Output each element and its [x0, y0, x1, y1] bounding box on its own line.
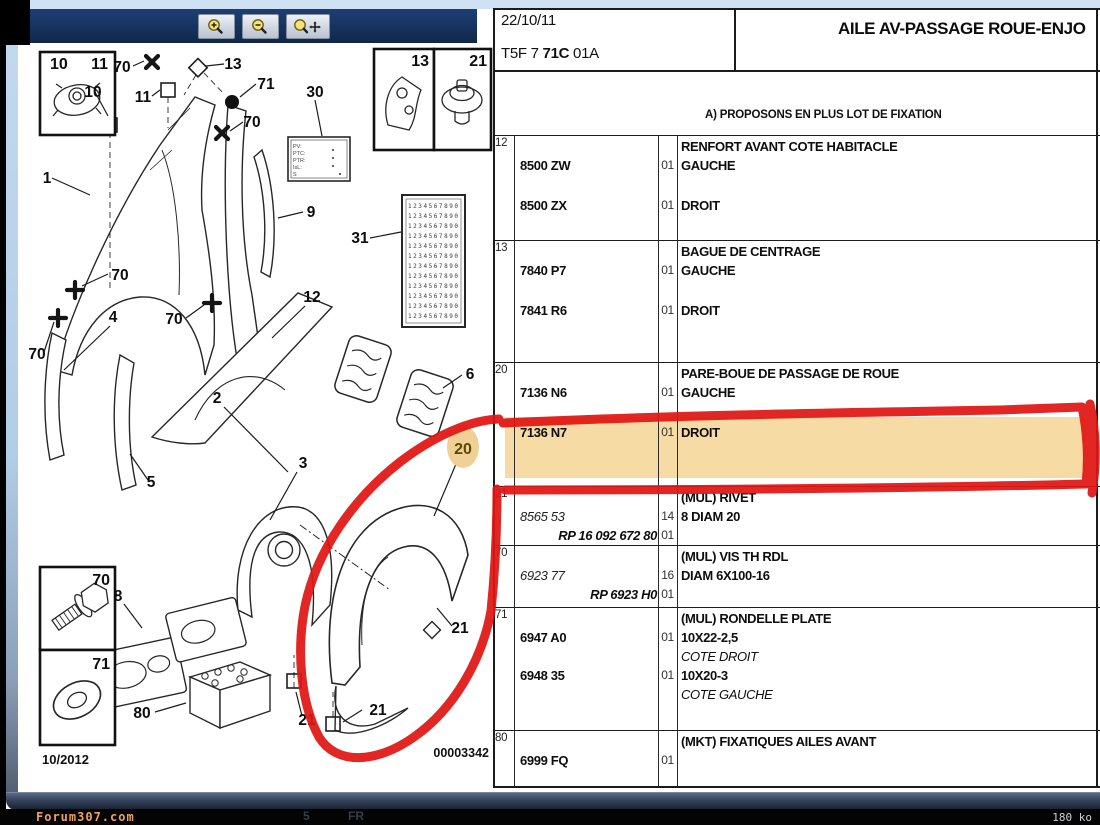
description-cell: DROIT — [677, 196, 1100, 215]
diagram-toolbar — [30, 9, 477, 43]
callout-71: 71 — [257, 76, 275, 93]
table-row[interactable]: 20PARE-BOUE DE PASSAGE DE ROUE7136 N601G… — [493, 362, 1100, 486]
callout-9: 9 — [307, 204, 316, 221]
part-number-cell: 6923 77 — [514, 566, 658, 585]
drawing-number: 00003342 — [433, 746, 489, 760]
svg-text:1234567890: 1234567890 — [408, 223, 458, 230]
quantity-cell: 01 — [658, 301, 677, 320]
quantity-cell: 01 — [658, 383, 677, 402]
row-index: 80 — [495, 732, 507, 744]
page-ref-suffix: 01A — [569, 45, 599, 62]
watermark-label: Forum307.com — [36, 810, 135, 824]
table-header: 22/10/11 T5F 7 71C 01A AILE AV-PASSAGE R… — [493, 9, 1100, 135]
part-number-cell: 7136 N6 — [514, 383, 658, 402]
part-line: 6947 A00110X22-2,5 — [514, 628, 1100, 647]
svg-text:PTR:: PTR: — [293, 158, 306, 164]
window-left-edge — [0, 0, 6, 825]
window-side-strip — [6, 43, 18, 792]
part-line: 8500 ZW01GAUCHE — [514, 156, 1100, 175]
part-description-header: (MUL) RONDELLE PLATE — [677, 609, 1100, 628]
table-row[interactable]: 12RENFORT AVANT COTE HABITACLE8500 ZW01G… — [493, 135, 1100, 240]
language-label: FR — [348, 809, 364, 823]
column-divider — [677, 135, 678, 787]
part-number-cell: 8500 ZW — [514, 156, 658, 175]
part-number-cell: 6948 35 — [514, 666, 658, 685]
svg-text:IsL:: IsL: — [293, 165, 302, 171]
callout-80: 80 — [133, 705, 150, 722]
diagram-date-label: 10/2012 — [42, 752, 89, 767]
callout-2: 2 — [213, 390, 222, 407]
magnifier-move-icon — [293, 18, 323, 35]
svg-text:PTC:: PTC: — [293, 151, 306, 157]
callout-5: 5 — [147, 474, 156, 491]
table-top-border — [493, 8, 1100, 10]
table-bottom-border — [493, 786, 1100, 788]
description-side-cell: COTE DROIT — [677, 647, 1100, 666]
magnifier-plus-icon — [206, 18, 228, 35]
svg-text:1234567890: 1234567890 — [408, 253, 458, 260]
inset-label-70: 70 — [92, 572, 110, 589]
quantity-cell: 01 — [658, 196, 677, 215]
exploded-parts-diagram: PV: PTC: PTR: IsL: S 1234567890 12345678… — [6, 43, 493, 792]
zoom-out-button[interactable] — [242, 14, 279, 39]
quantity-cell: 14 — [658, 507, 677, 526]
column-divider — [514, 135, 515, 787]
inset-label-21: 21 — [469, 53, 487, 70]
svg-text:1234567890: 1234567890 — [408, 203, 458, 210]
part-number-cell: 7840 P7 — [514, 261, 658, 280]
svg-text:1234567890: 1234567890 — [408, 263, 458, 270]
callout-70: 70 — [113, 59, 130, 76]
sheet-title: AILE AV-PASSAGE ROUE-ENJO — [736, 19, 1100, 43]
callout-4: 4 — [109, 309, 118, 326]
part-line: 6923 7716DIAM 6X100-16 — [514, 566, 1100, 585]
diagram-panel: PV: PTC: PTR: IsL: S 1234567890 12345678… — [6, 43, 493, 792]
column-divider — [658, 135, 659, 787]
filesize-label: 180 ko — [1052, 811, 1092, 824]
page-reference: T5F 7 71C 01A — [501, 45, 599, 62]
inset-label-71: 71 — [92, 656, 110, 673]
part-number-cell: RP 16 092 672 80 — [514, 526, 658, 545]
magnifier-minus-icon — [250, 18, 272, 35]
part-line: 7840 P701GAUCHE — [514, 261, 1100, 280]
quantity-cell: 01 — [658, 666, 677, 685]
part-line: COTE DROIT — [514, 647, 1100, 666]
description-cell: 10X20-3 — [677, 666, 1100, 685]
highlighted-part-line: 7136 N701DROIT — [514, 423, 1100, 442]
part-number-cell: 8565 53 — [514, 507, 658, 526]
quantity-cell: 01 — [658, 628, 677, 647]
footer-bar: Forum307.com 5 FR 180 ko — [0, 809, 1100, 825]
row-index: 71 — [495, 609, 507, 621]
svg-text:PV:: PV: — [293, 144, 302, 150]
callout-70: 70 — [243, 114, 260, 131]
part-number-cell: 8500 ZX — [514, 196, 658, 215]
parts-table-body: 12RENFORT AVANT COTE HABITACLE8500 ZW01G… — [493, 135, 1100, 787]
callout-21: 21 — [369, 702, 387, 719]
part-description-header: PARE-BOUE DE PASSAGE DE ROUE — [677, 364, 1100, 383]
part-number-cell: RP 6923 H0 — [514, 585, 658, 604]
header-bottom-border — [493, 70, 1100, 72]
part-description-header: (MKT) FIXATIQUES AILES AVANT — [677, 732, 1100, 751]
quantity-cell: 01 — [658, 156, 677, 175]
row-index: 21 — [495, 488, 507, 500]
callout-8: 8 — [114, 588, 123, 605]
pin-dot-marker — [225, 95, 239, 109]
svg-text:1234567890: 1234567890 — [408, 243, 458, 250]
table-row[interactable]: 71(MUL) RONDELLE PLATE6947 A00110X22-2,5… — [493, 607, 1100, 730]
quantity-cell: 01 — [658, 526, 677, 545]
digit-sticker-sheet-31: 1234567890 1234567890 1234567890 1234567… — [402, 195, 465, 327]
description-side-cell: COTE GAUCHE — [677, 685, 1100, 704]
svg-text:1234567890: 1234567890 — [408, 233, 458, 240]
date-label: 22/10/11 — [501, 12, 556, 29]
svg-text:1234567890: 1234567890 — [408, 313, 458, 320]
callout-11: 11 — [135, 89, 152, 106]
part-description-header: (MUL) RIVET — [677, 488, 1100, 507]
table-row[interactable]: 13BAGUE DE CENTRAGE7840 P701GAUCHE7841 R… — [493, 240, 1100, 362]
row-index: 13 — [495, 242, 507, 254]
page-number-label: 5 — [303, 809, 310, 823]
table-row[interactable]: 21(MUL) RIVET8565 53148 DIAM 20RP 16 092… — [493, 486, 1100, 545]
part-description-header: (MUL) VIS TH RDL — [677, 547, 1100, 566]
row-index: 70 — [495, 547, 507, 559]
callout-1: 1 — [43, 170, 52, 187]
part-line: RP 16 092 672 8001 — [514, 526, 1100, 545]
quantity-cell: 01 — [658, 261, 677, 280]
callout-3: 3 — [299, 455, 308, 472]
part-number-cell: 7841 R6 — [514, 301, 658, 320]
part-line: COTE GAUCHE — [514, 685, 1100, 704]
quantity-cell: 01 — [658, 751, 677, 770]
callout-70: 70 — [111, 267, 128, 284]
callout-31: 31 — [351, 230, 369, 247]
description-cell: GAUCHE — [677, 261, 1100, 280]
quantity-cell: 16 — [658, 566, 677, 585]
row-index: 20 — [495, 364, 507, 376]
description-cell: DROIT — [677, 423, 1100, 442]
svg-text:S: S — [293, 172, 297, 178]
window-bottom-bar — [6, 792, 1100, 810]
spec-plate-30: PV: PTC: PTR: IsL: S — [288, 137, 350, 181]
callout-21: 21 — [451, 620, 469, 637]
svg-text:1234567890: 1234567890 — [408, 283, 458, 290]
inset-label-10: 10 — [50, 56, 68, 73]
zoom-in-button[interactable] — [198, 14, 235, 39]
page-ref-code: 71C — [543, 45, 570, 62]
row-index: 12 — [495, 137, 507, 149]
callout-20: 20 — [454, 441, 472, 458]
part-line: 6999 FQ01 — [514, 751, 1100, 770]
table-right-border — [1096, 9, 1098, 787]
inset-label-13: 13 — [411, 53, 429, 70]
page-ref-prefix: T5F 7 — [501, 45, 543, 62]
table-row[interactable]: 70(MUL) VIS TH RDL6923 7716DIAM 6X100-16… — [493, 545, 1100, 607]
inset-label-11: 11 — [91, 56, 108, 73]
part-line: 8565 53148 DIAM 20 — [514, 507, 1100, 526]
description-cell: DROIT — [677, 301, 1100, 320]
description-cell: GAUCHE — [677, 156, 1100, 175]
callout-12: 12 — [303, 289, 320, 306]
parts-catalog-window: PV: PTC: PTR: IsL: S 1234567890 12345678… — [0, 0, 1100, 825]
callout-70: 70 — [165, 311, 182, 328]
callout-21: 21 — [298, 712, 316, 729]
table-left-border — [493, 9, 495, 787]
svg-text:1234567890: 1234567890 — [408, 213, 458, 220]
svg-text:1234567890: 1234567890 — [408, 273, 458, 280]
part-number-cell: 6947 A0 — [514, 628, 658, 647]
callout-30: 30 — [306, 84, 323, 101]
part-line: 8500 ZX01DROIT — [514, 196, 1100, 215]
callout-10: 10 — [84, 84, 101, 101]
zoom-pan-button[interactable] — [286, 14, 330, 39]
header-divider — [734, 9, 736, 70]
description-cell: 8 DIAM 20 — [677, 507, 1100, 526]
part-line: 7136 N601GAUCHE — [514, 383, 1100, 402]
fixation-note: A) PROPOSONS EN PLUS LOT DE FIXATION — [705, 109, 942, 121]
description-cell: DIAM 6X100-16 — [677, 566, 1100, 585]
table-row[interactable]: 80(MKT) FIXATIQUES AILES AVANT6999 FQ01 — [493, 730, 1100, 789]
description-cell: 10X22-2,5 — [677, 628, 1100, 647]
part-description-header: RENFORT AVANT COTE HABITACLE — [677, 137, 1100, 156]
quantity-cell: 01 — [658, 585, 677, 604]
part-number-cell: 6999 FQ — [514, 751, 658, 770]
part-line: 7841 R601DROIT — [514, 301, 1100, 320]
callout-70: 70 — [28, 346, 45, 363]
quantity-cell: 01 — [658, 423, 677, 442]
part-number-cell: 7136 N7 — [514, 423, 658, 442]
part-line: 6948 350110X20-3 — [514, 666, 1100, 685]
svg-text:1234567890: 1234567890 — [408, 303, 458, 310]
svg-text:1234567890: 1234567890 — [408, 293, 458, 300]
callout-6: 6 — [466, 366, 475, 383]
description-cell: GAUCHE — [677, 383, 1100, 402]
callout-13: 13 — [224, 56, 242, 73]
part-description-header: BAGUE DE CENTRAGE — [677, 242, 1100, 261]
part-line: RP 6923 H001 — [514, 585, 1100, 604]
